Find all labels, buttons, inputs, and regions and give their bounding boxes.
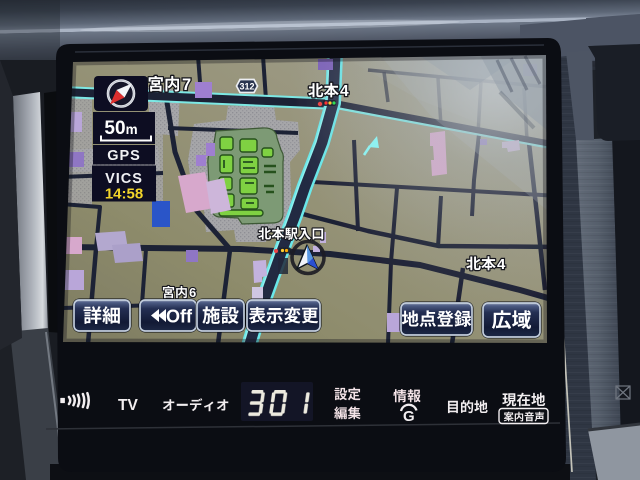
- svg-text:14:58: 14:58: [105, 186, 143, 203]
- svg-text:GPS: GPS: [107, 148, 141, 164]
- svg-text:6: 6: [189, 285, 196, 300]
- svg-text:312: 312: [239, 82, 254, 92]
- svg-text:G: G: [403, 408, 415, 425]
- svg-text:4: 4: [340, 83, 349, 100]
- svg-text:TV: TV: [118, 397, 138, 414]
- svg-text:7: 7: [182, 76, 191, 94]
- svg-text:50m: 50m: [104, 118, 137, 139]
- svg-text:Off: Off: [166, 307, 193, 327]
- svg-text:4: 4: [497, 256, 506, 273]
